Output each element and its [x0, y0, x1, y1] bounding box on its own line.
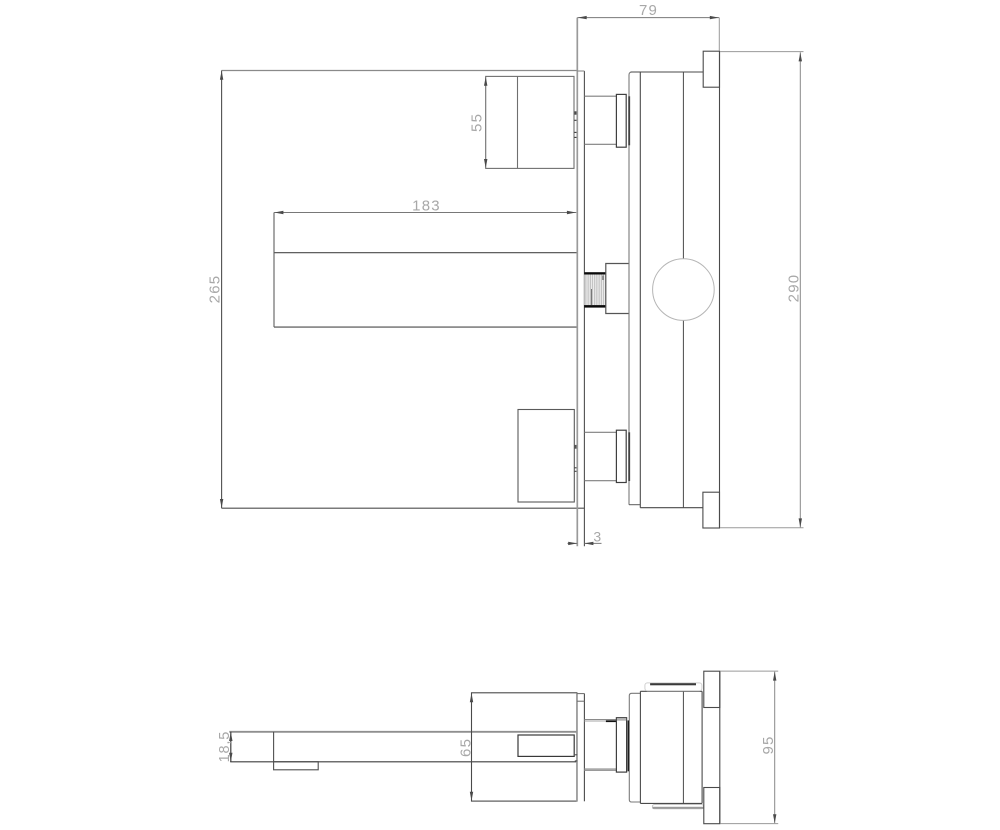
svg-text:290: 290: [786, 274, 803, 303]
svg-text:3: 3: [593, 529, 601, 545]
svg-text:183: 183: [412, 198, 441, 215]
svg-text:79: 79: [639, 2, 658, 19]
svg-text:18,5: 18,5: [217, 731, 233, 762]
svg-text:265: 265: [206, 275, 223, 304]
svg-text:65: 65: [458, 738, 475, 757]
svg-text:95: 95: [760, 735, 777, 754]
svg-text:55: 55: [469, 113, 486, 132]
